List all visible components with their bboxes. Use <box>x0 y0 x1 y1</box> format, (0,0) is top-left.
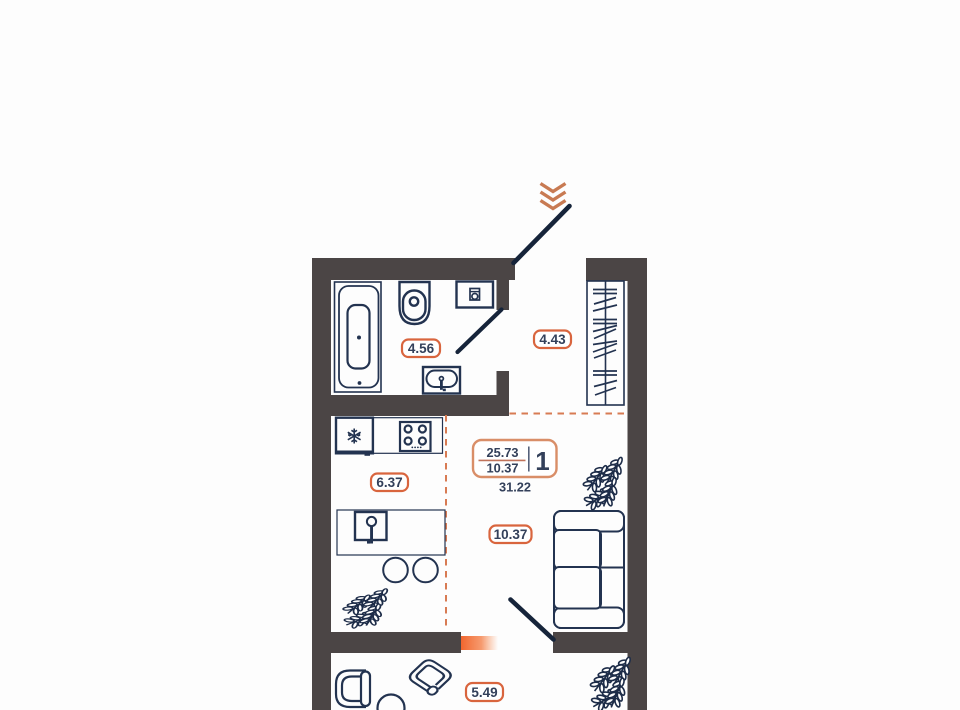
svg-text:31.22: 31.22 <box>499 480 531 495</box>
svg-text:25.73: 25.73 <box>486 445 518 460</box>
svg-text:4.56: 4.56 <box>408 341 435 356</box>
svg-text:6.37: 6.37 <box>376 475 402 490</box>
svg-text:10.37: 10.37 <box>494 527 528 542</box>
svg-text:1: 1 <box>535 446 549 476</box>
svg-text:5.49: 5.49 <box>471 685 497 700</box>
svg-text:4.43: 4.43 <box>539 332 566 347</box>
svg-text:10.37: 10.37 <box>486 461 518 476</box>
